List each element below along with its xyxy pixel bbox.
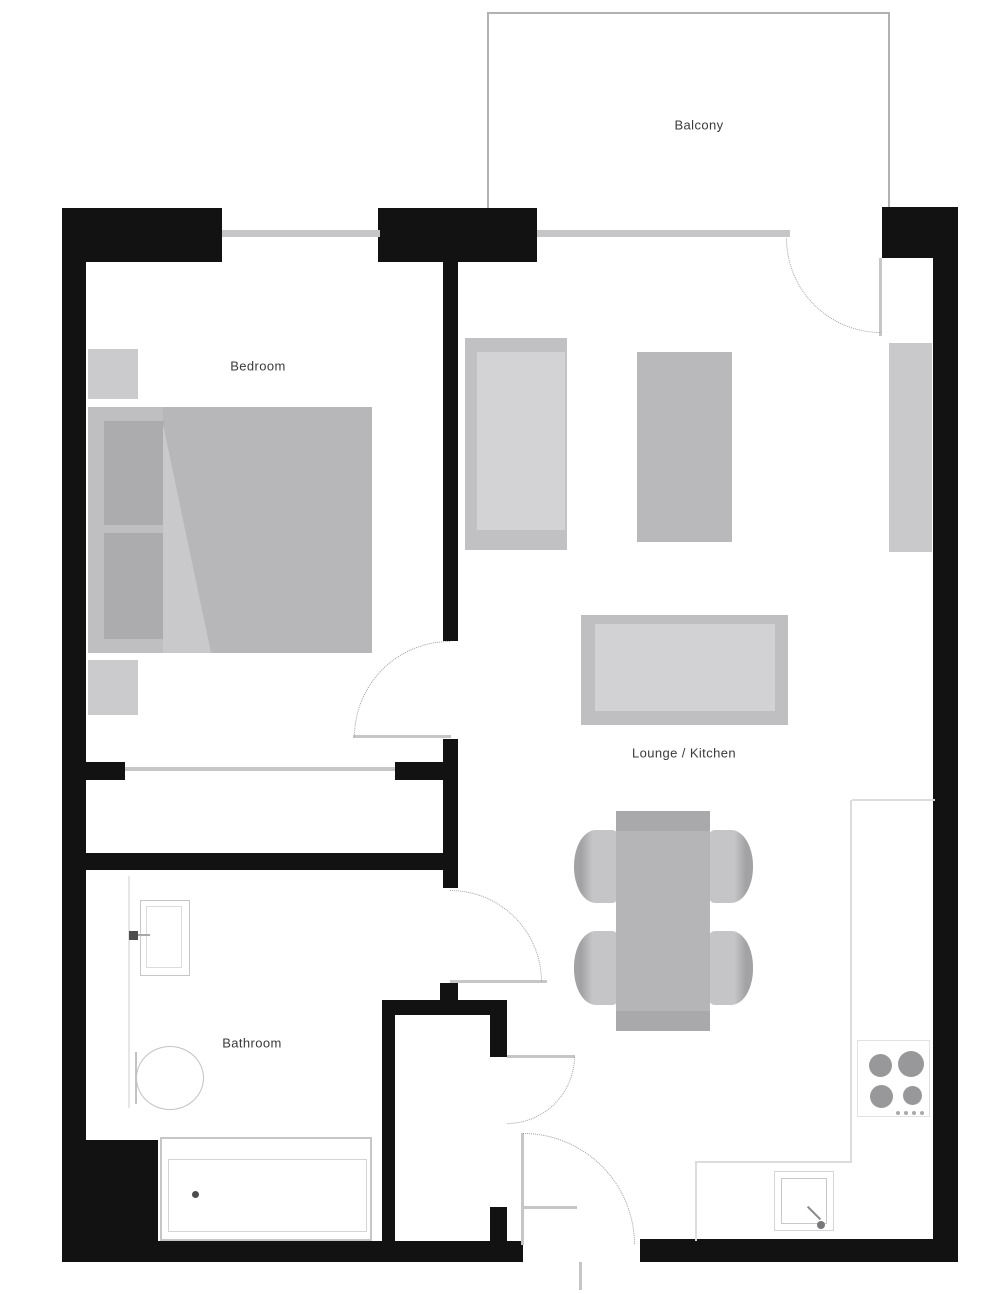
wall-cupboard-left — [382, 1000, 395, 1243]
wall-cupboard-right-lower — [490, 1207, 507, 1243]
room-label-lounge-kitchen: Lounge / Kitchen — [632, 746, 736, 761]
tv-unit-top — [595, 624, 775, 711]
wall-bottom-left-column — [65, 1140, 158, 1253]
chair — [574, 830, 618, 903]
bedroom-window — [222, 230, 380, 237]
balcony-outline — [487, 12, 890, 210]
wall-wardrobe-tick-right — [395, 762, 458, 780]
wall-top-right-corner — [882, 207, 958, 258]
kitchen-faucet-base — [817, 1221, 825, 1229]
bed — [88, 407, 372, 653]
entry-outside-tick — [579, 1262, 582, 1290]
hob — [857, 1040, 930, 1117]
chair — [709, 830, 753, 903]
lounge-window — [537, 230, 790, 237]
wall-unit — [889, 343, 932, 552]
room-label-balcony: Balcony — [674, 118, 723, 133]
wall-right — [933, 258, 958, 1262]
dining-table — [616, 811, 710, 1031]
wall-left — [62, 208, 86, 1262]
room-label-bathroom: Bathroom — [222, 1036, 282, 1051]
sofa-seat — [477, 352, 565, 530]
room-label-bedroom: Bedroom — [230, 359, 286, 374]
kitchen-counter-edge — [695, 1163, 697, 1241]
hob-knob — [896, 1111, 900, 1115]
basin-inner — [146, 906, 182, 968]
wall-bottom-right — [640, 1239, 958, 1262]
wardrobe-front-line — [125, 767, 395, 771]
wall-wardrobe-tick-left — [83, 762, 125, 780]
hob-burner — [870, 1085, 893, 1108]
kitchen-sink — [774, 1171, 834, 1231]
tv-unit — [581, 615, 788, 725]
wall-top-middle — [378, 208, 537, 262]
wall-cupboard-top — [382, 1000, 507, 1015]
wall-top-left-corner — [62, 208, 222, 262]
basin-faucet-stub — [138, 934, 150, 936]
chair — [574, 931, 618, 1005]
kitchen-counter-edge — [695, 1161, 852, 1163]
entry-door-arc — [411, 1133, 635, 1294]
hob-burner — [898, 1051, 924, 1077]
wall-bathroom-top — [62, 853, 458, 870]
sofa — [465, 338, 567, 550]
wall-cupboard-notch — [440, 983, 458, 1000]
bathroom-wall-line — [128, 876, 130, 1108]
hob-knob — [904, 1111, 908, 1115]
bed-pillow — [104, 533, 164, 639]
kitchen-counter-edge — [852, 799, 935, 801]
bathtub-drain — [192, 1191, 199, 1198]
basin-faucet — [129, 931, 138, 940]
hob-burner — [903, 1086, 922, 1105]
floor-plan: Balcony Bedroom Lounge / Kitchen Bathroo… — [0, 0, 1000, 1294]
nightstand-bottom — [88, 660, 138, 715]
bathtub — [160, 1137, 372, 1241]
toilet-cistern-line — [135, 1052, 137, 1104]
toilet — [136, 1046, 204, 1110]
hob-burner — [869, 1054, 892, 1077]
nightstand-top — [88, 349, 138, 399]
chair — [709, 931, 753, 1005]
bed-pillow — [104, 421, 164, 525]
hob-knob — [912, 1111, 916, 1115]
basin — [140, 900, 190, 976]
wall-bedroom-divider-upper — [443, 258, 458, 641]
hob-knob — [920, 1111, 924, 1115]
kitchen-counter-edge — [850, 800, 852, 1163]
rug — [637, 352, 732, 542]
wall-cupboard-right-upper — [490, 1015, 507, 1057]
